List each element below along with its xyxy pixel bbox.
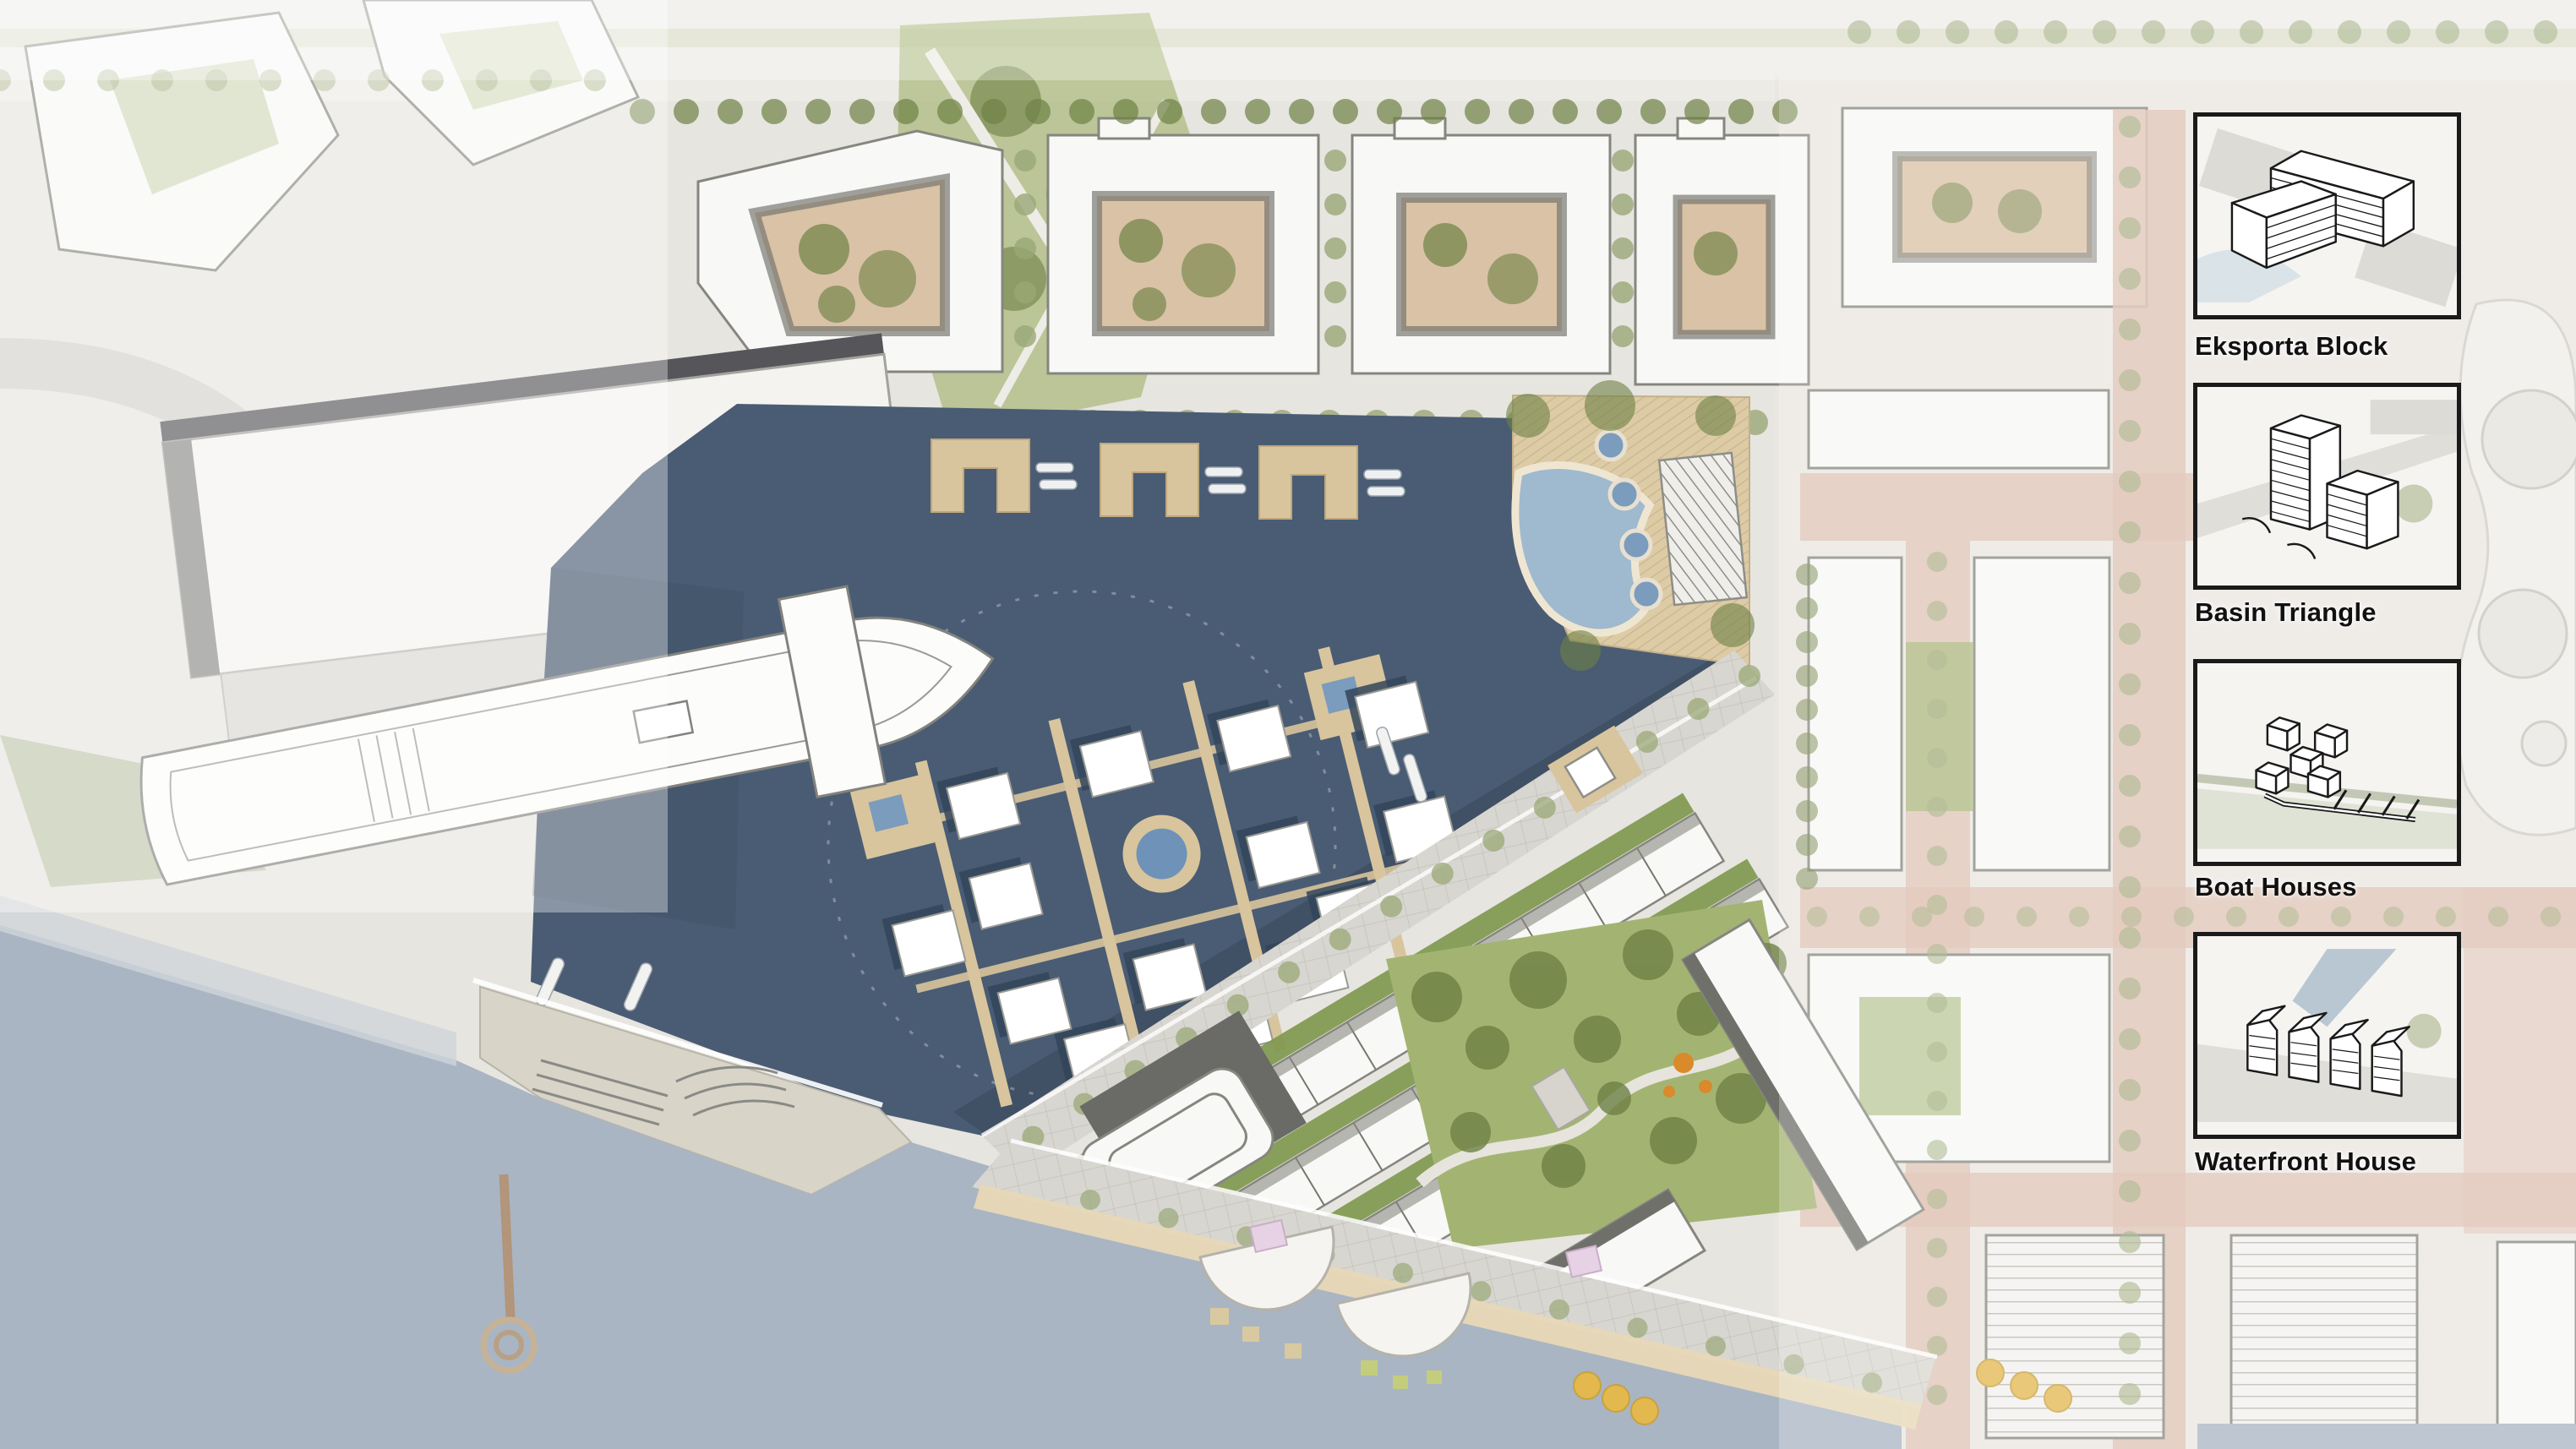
legend-label-boat-houses: Boat Houses bbox=[2195, 872, 2533, 902]
legend-label-basin-triangle: Basin Triangle bbox=[2195, 597, 2533, 628]
site-plan-canvas bbox=[0, 0, 2576, 1449]
block-2 bbox=[1048, 118, 1318, 373]
legend-panel-waterfront-house bbox=[2193, 932, 2461, 1139]
legend-panel-boat-houses bbox=[2193, 659, 2461, 866]
masterplan-page: { "legend": { "items": [ {"label": "Eksp… bbox=[0, 0, 2576, 1449]
block-3 bbox=[1352, 118, 1610, 373]
kayak-pavilions bbox=[931, 439, 1405, 519]
legend-label-eksporta-block: Eksporta Block bbox=[2195, 331, 2533, 362]
context-fade-left bbox=[0, 0, 668, 912]
legend-label-waterfront-house: Waterfront House bbox=[2195, 1147, 2533, 1177]
context-fade-top bbox=[0, 0, 2576, 80]
legend-panel-eksporta-block bbox=[2193, 112, 2461, 319]
legend-panel-basin-triangle bbox=[2193, 383, 2461, 590]
